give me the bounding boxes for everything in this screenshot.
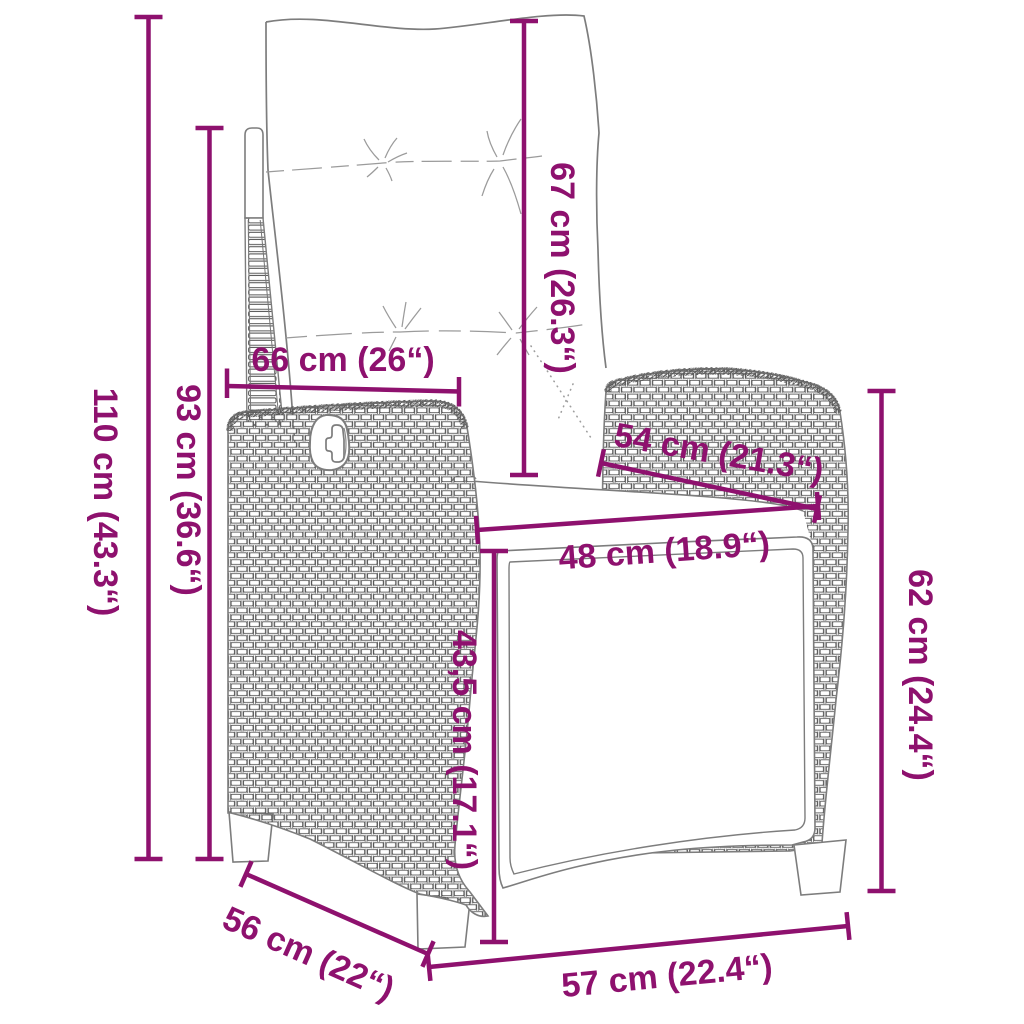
svg-text:62 cm (24.4“): 62 cm (24.4“) <box>901 569 939 781</box>
svg-text:93 cm (36.6“): 93 cm (36.6“) <box>169 384 207 596</box>
svg-text:43,5 cm (17.1“): 43,5 cm (17.1“) <box>445 630 483 870</box>
svg-text:67 cm (26.3“): 67 cm (26.3“) <box>543 162 581 374</box>
svg-text:66 cm (26“): 66 cm (26“) <box>251 341 434 379</box>
svg-text:110 cm (43.3“): 110 cm (43.3“) <box>86 388 124 617</box>
